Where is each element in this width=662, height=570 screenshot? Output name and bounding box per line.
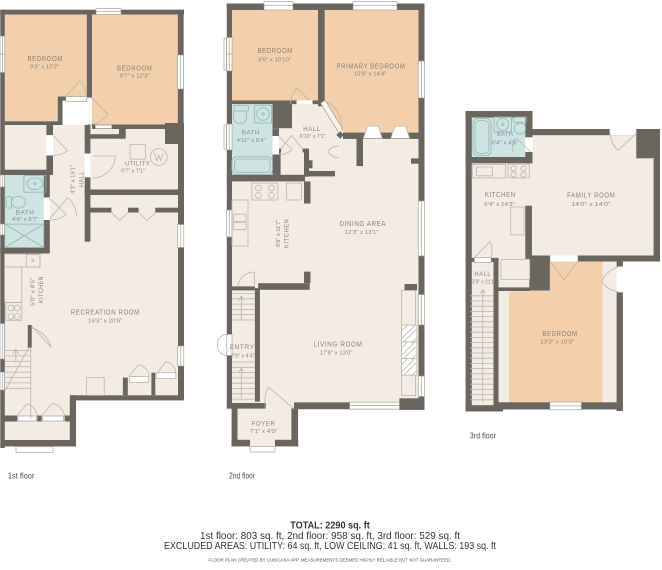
svg-text:HALL: HALL [474,271,491,278]
svg-text:KITCHEN: KITCHEN [284,219,291,248]
svg-text:FAMILY ROOM: FAMILY ROOM [567,191,615,200]
svg-text:BATH: BATH [16,209,35,216]
svg-text:HALL: HALL [303,126,321,133]
svg-text:7'1" x 4'0": 7'1" x 4'0" [250,429,277,435]
svg-text:LIVING ROOM: LIVING ROOM [314,339,363,348]
svg-text:BEDROOM: BEDROOM [257,46,293,55]
svg-text:FOYER: FOYER [252,421,276,428]
svg-text:BEDROOM: BEDROOM [542,329,577,338]
svg-text:6'4" x 14'3": 6'4" x 14'3" [484,202,515,208]
svg-text:EXCLUDED AREAS: UTILITY: 64 sq: EXCLUDED AREAS: UTILITY: 64 sq. ft, LOW … [164,540,496,552]
svg-text:3'9" x 21'1": 3'9" x 21'1" [472,279,496,285]
svg-text:2'9" x 4'4": 2'9" x 4'4" [231,354,255,360]
svg-text:12'3" x 13'1": 12'3" x 13'1" [345,230,379,236]
svg-text:HALL: HALL [78,171,85,187]
svg-text:ENTRY: ENTRY [230,344,255,351]
svg-text:8'9" x 11'7": 8'9" x 11'7" [276,220,282,247]
svg-text:5'0" x 8'5": 5'0" x 8'5" [30,278,36,306]
svg-text:9'3" x 10'2": 9'3" x 10'2" [30,64,60,70]
svg-text:DINING AREA: DINING AREA [340,219,387,228]
svg-text:9'9" x 10'10": 9'9" x 10'10" [258,58,291,64]
svg-text:FLOOR PLAN CREATED BY CUBICASA: FLOOR PLAN CREATED BY CUBICASA APP. MEAS… [209,557,452,563]
svg-text:9'7" x 12'3": 9'7" x 12'3" [120,73,150,79]
svg-text:4'3" x 15'1": 4'3" x 15'1" [71,165,77,194]
svg-text:9'7" x 7'1": 9'7" x 7'1" [121,169,145,175]
svg-text:6'10" x 7'1": 6'10" x 7'1" [300,134,326,140]
svg-text:1st floor: 1st floor [8,471,35,481]
svg-text:16'3" x 20'6": 16'3" x 20'6" [88,318,123,324]
svg-text:13'3" x 16'0": 13'3" x 16'0" [540,340,574,346]
svg-text:KITCHEN: KITCHEN [38,276,45,303]
svg-text:4'9" x 8'7": 4'9" x 8'7" [12,217,39,223]
svg-text:BATH: BATH [497,131,513,138]
svg-text:BEDROOM: BEDROOM [117,63,152,72]
svg-text:RECREATION ROOM: RECREATION ROOM [71,308,140,317]
svg-text:2nd floor: 2nd floor [229,471,255,481]
svg-text:6'4" x 4'8": 6'4" x 4'8" [492,141,519,147]
svg-text:10'8" x 14'4": 10'8" x 14'4" [354,72,386,78]
svg-text:3rd floor: 3rd floor [470,431,496,441]
svg-text:PRIMARY BEDROOM: PRIMARY BEDROOM [337,62,406,71]
svg-text:14'0" x 14'0": 14'0" x 14'0" [571,202,610,208]
svg-text:KITCHEN: KITCHEN [485,190,516,199]
svg-text:4'11" x 8'4": 4'11" x 8'4" [237,138,266,144]
svg-text:BATH: BATH [242,130,260,137]
svg-text:BEDROOM: BEDROOM [28,54,63,63]
svg-text:17'8" x 13'0": 17'8" x 13'0" [320,351,353,357]
svg-text:UTILITY: UTILITY [125,160,150,167]
